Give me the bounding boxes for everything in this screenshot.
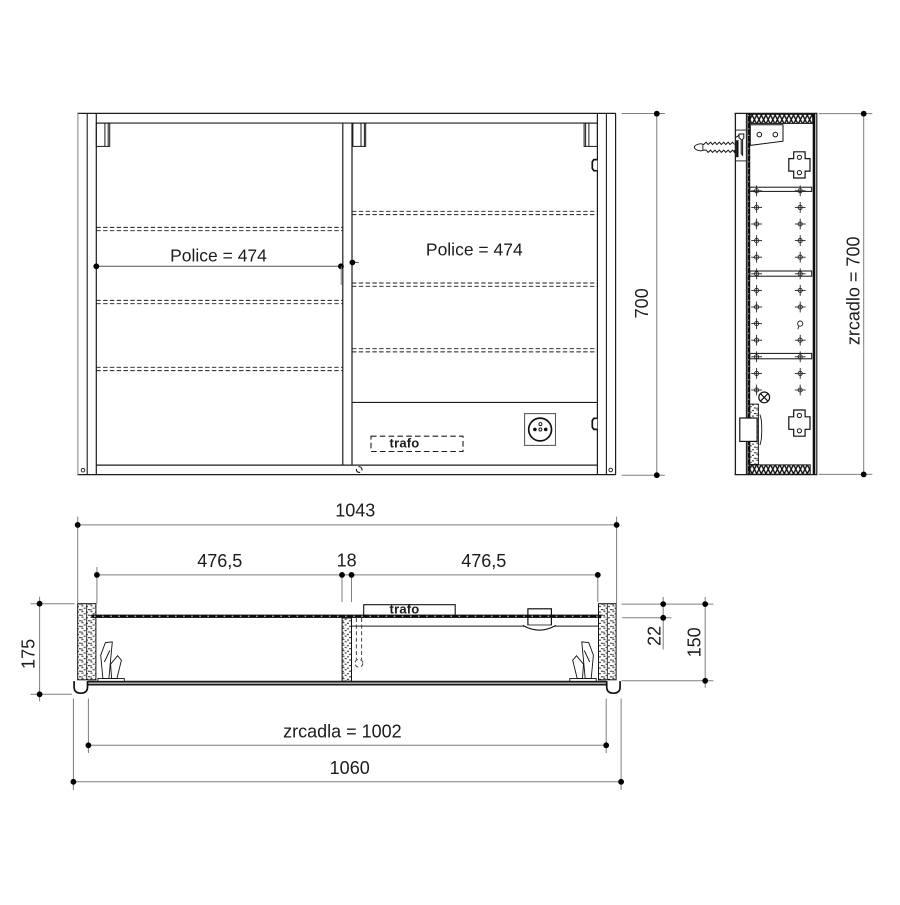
svg-text:18: 18: [337, 550, 357, 570]
svg-text:Police = 474: Police = 474: [170, 245, 267, 265]
svg-text:zrcadlo = 700: zrcadlo = 700: [844, 237, 864, 346]
svg-text:zrcadla = 1002: zrcadla = 1002: [283, 722, 402, 742]
svg-text:1060: 1060: [330, 758, 370, 778]
svg-text:1043: 1043: [335, 501, 375, 521]
svg-text:trafo: trafo: [390, 602, 420, 617]
svg-text:22: 22: [645, 626, 665, 646]
svg-text:150: 150: [684, 627, 704, 657]
svg-text:175: 175: [19, 639, 39, 669]
svg-text:700: 700: [632, 288, 652, 318]
svg-text:trafo: trafo: [390, 436, 420, 451]
svg-text:476,5: 476,5: [197, 551, 242, 571]
svg-text:476,5: 476,5: [461, 551, 506, 571]
svg-text:Police = 474: Police = 474: [426, 240, 523, 260]
